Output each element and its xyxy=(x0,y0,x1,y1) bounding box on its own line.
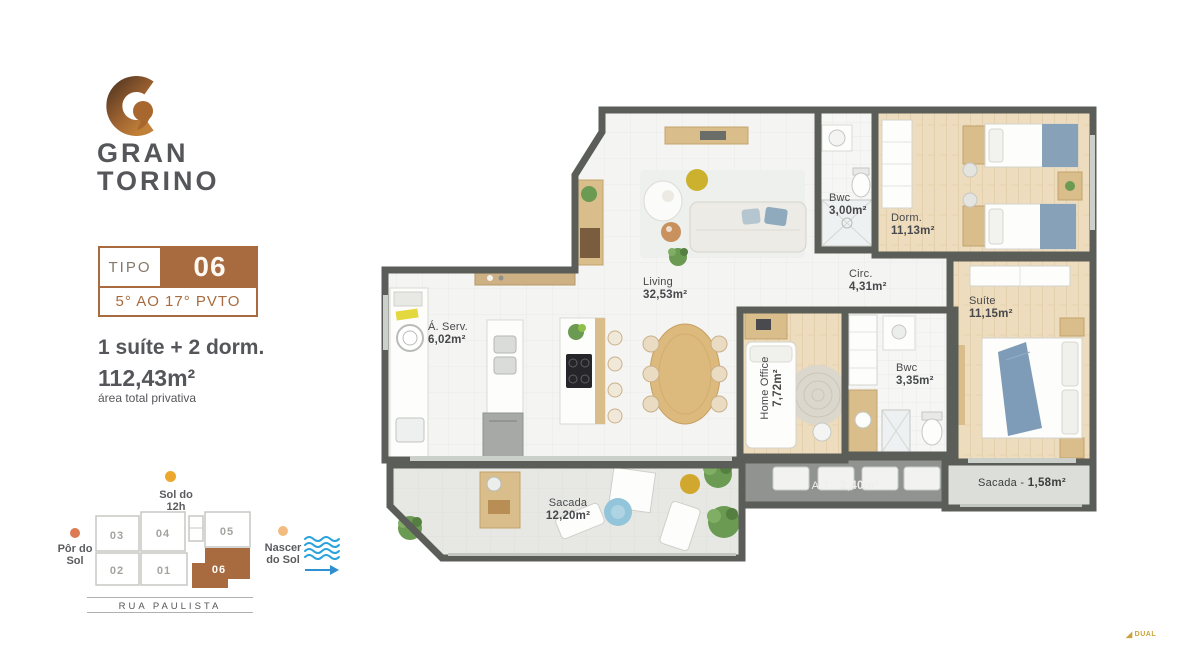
key-label-02: 02 xyxy=(110,565,124,577)
key-plan: 03 04 05 02 01 06 xyxy=(93,503,258,595)
label-circ: Circ. 4,31m² xyxy=(849,268,887,294)
key-label-03: 03 xyxy=(110,530,124,542)
total-area: 112,43m² xyxy=(98,365,195,392)
street-name: RUA PAULISTA xyxy=(87,601,253,612)
key-label-05: 05 xyxy=(220,526,234,538)
label-sacada: Sacada 12,20m² xyxy=(518,497,618,523)
sunrise-dot xyxy=(278,526,288,536)
program-summary: 1 suíte + 2 dorm. xyxy=(98,336,264,360)
street-line-bottom xyxy=(87,612,253,613)
tipo-label: TIPO xyxy=(98,246,162,288)
label-sacada-suite: Sacada - 1,58m² xyxy=(952,477,1092,489)
floors-range: 5° AO 17° PVTO xyxy=(98,288,258,317)
key-label-01: 01 xyxy=(157,565,171,577)
floor-plan-canvas xyxy=(370,80,1125,600)
brand-name-line2: TORINO xyxy=(97,166,220,197)
label-bwc-suite: Bwc 3,35m² xyxy=(896,362,934,388)
watermark-logo: ◢ DUAL xyxy=(1126,630,1156,639)
label-dorm: Dorm. 11,13m² xyxy=(891,212,935,238)
label-bwc-social: Bwc 3,00m² xyxy=(829,192,867,218)
unit-number: 06 xyxy=(162,246,258,288)
brand-name-line1: GRAN xyxy=(97,138,189,169)
sun-noon-dot xyxy=(165,471,176,482)
gran-torino-logo-icon xyxy=(95,76,167,136)
watermark-mark-icon: ◢ xyxy=(1126,630,1133,639)
street-line-top xyxy=(87,597,253,598)
dining-furniture xyxy=(643,324,727,424)
label-serv: Á. Serv. 6,02m² xyxy=(428,321,468,347)
key-label-04: 04 xyxy=(156,528,170,540)
label-home-office: Home Office 7,72m² xyxy=(759,338,785,438)
label-at: A.T - 2,40m² xyxy=(785,480,905,492)
label-living: Living 32,53m² xyxy=(643,276,687,302)
unit-type-card: TIPO 06 5° AO 17° PVTO xyxy=(98,246,258,317)
sunset-dot xyxy=(70,528,80,538)
sea-breeze-icon xyxy=(303,534,341,578)
sunset-label: Pôr do Sol xyxy=(45,543,105,567)
marketing-floorplan-page: GRAN TORINO TIPO 06 5° AO 17° PVTO 1 suí… xyxy=(0,0,1191,669)
label-suite: Suíte 11,15m² xyxy=(969,295,1013,321)
key-label-06: 06 xyxy=(212,564,226,576)
area-caption: área total privativa xyxy=(98,391,196,405)
